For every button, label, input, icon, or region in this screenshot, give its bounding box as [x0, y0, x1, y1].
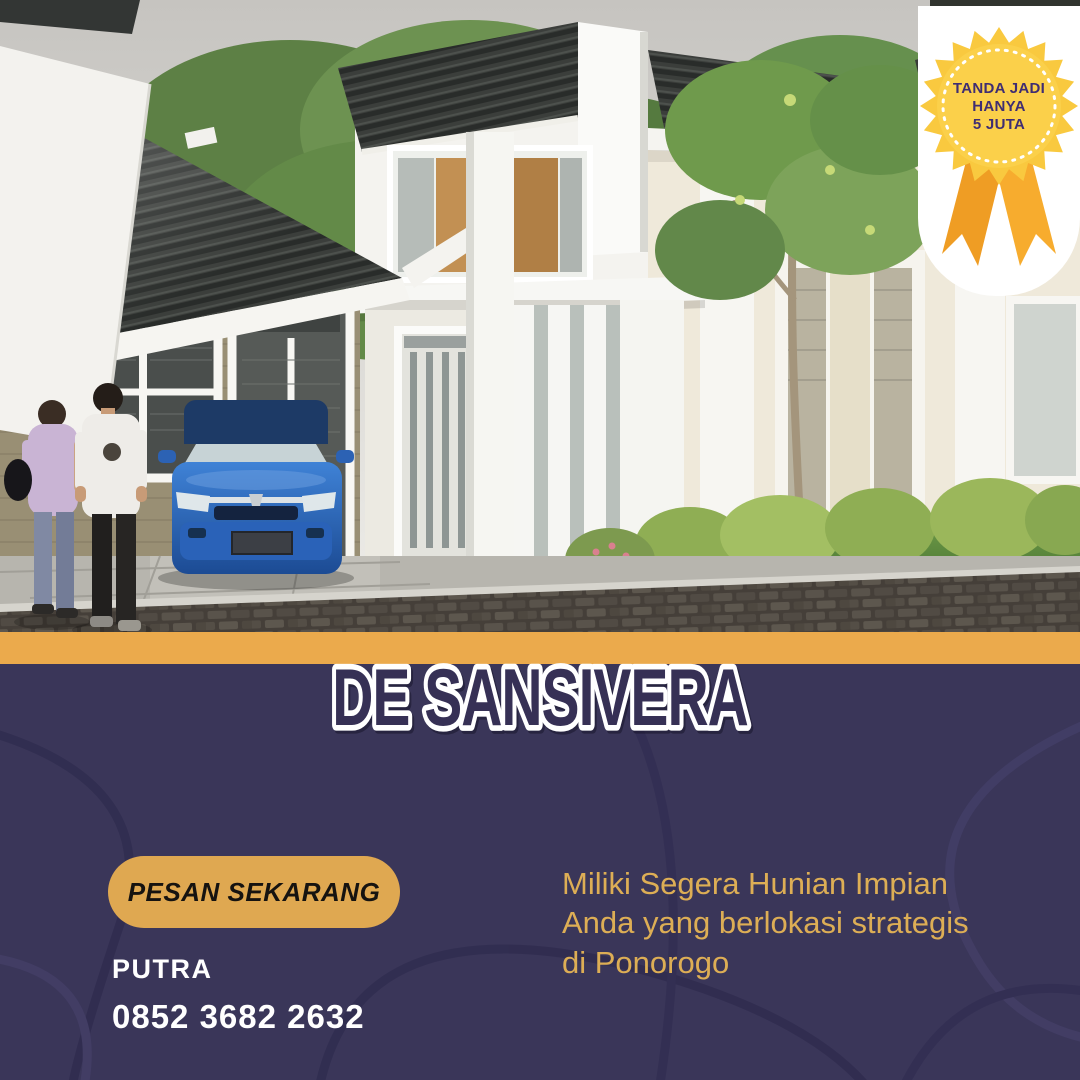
cta-button[interactable]: PESAN SEKARANG: [108, 856, 400, 928]
ground: [0, 556, 1080, 632]
title-block: DE SANSIVERA: [0, 640, 1080, 760]
project-title: DE SANSIVERA: [332, 652, 748, 742]
badge-graphic: [918, 6, 1080, 296]
price-badge: TANDA JADI HANYA 5 JUTA: [918, 6, 1080, 296]
badge-line-3: 5 JUTA: [918, 116, 1080, 134]
house-photo: TANDA JADI HANYA 5 JUTA: [0, 0, 1080, 632]
badge-text: TANDA JADI HANYA 5 JUTA: [918, 80, 1080, 134]
badge-line-2: HANYA: [918, 98, 1080, 116]
badge-line-1: TANDA JADI: [918, 80, 1080, 98]
info-section: DE SANSIVERA PESAN SEKARANG PUTRA 0852 3…: [0, 664, 1080, 1080]
blue-car: [158, 400, 354, 590]
real-estate-flyer: TANDA JADI HANYA 5 JUTA DE SANSIVERA: [0, 0, 1080, 1080]
contact-name: PUTRA: [112, 954, 213, 985]
tagline-text: Miliki Segera Hunian Impian Anda yang be…: [562, 864, 1054, 982]
contact-phone: 0852 3682 2632: [112, 998, 365, 1036]
